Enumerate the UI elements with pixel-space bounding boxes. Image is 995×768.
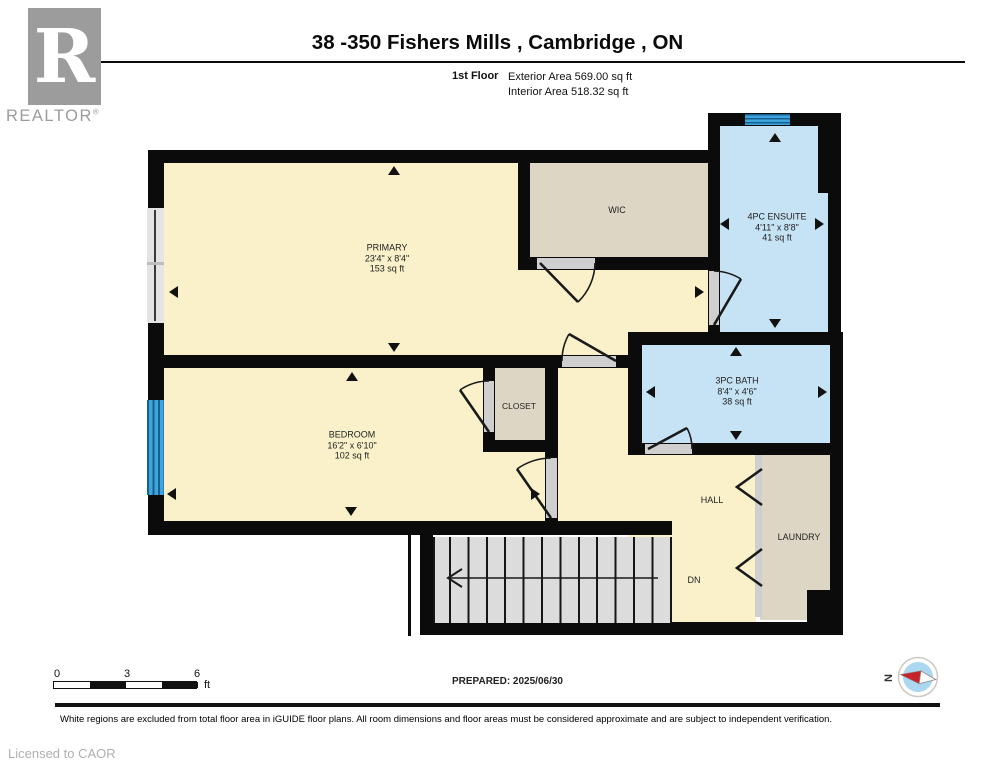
room-dims: 16'2" x 6'10" <box>327 440 376 451</box>
room-name: WIC <box>608 205 626 216</box>
scale-bar-segment <box>90 682 126 688</box>
area-summary: Exterior Area 569.00 sq ft Interior Area… <box>508 70 632 99</box>
exterior-area: Exterior Area 569.00 sq ft <box>508 70 632 85</box>
wall-segment <box>628 332 843 345</box>
bath-room-label: 3PC BATH 8'4" x 4'6" 38 sq ft <box>715 375 758 407</box>
room-name: PRIMARY <box>365 242 409 253</box>
closet-room-label: CLOSET <box>502 401 536 412</box>
laundry-room-label: LAUNDRY <box>778 532 821 543</box>
laundry-door-track <box>755 455 762 617</box>
ensuite-door-sill <box>709 271 719 325</box>
floor-label: 1st Floor <box>452 70 498 82</box>
scale-bar <box>53 681 197 689</box>
scale-tick-3: 3 <box>124 668 130 680</box>
wall-segment <box>518 163 530 267</box>
license-text: Licensed to CAOR <box>8 746 116 761</box>
room-name: BEDROOM <box>327 429 376 440</box>
hall-room-label: HALL <box>701 495 724 506</box>
corridor-door-sill <box>562 356 616 367</box>
room-dims: 8'4" x 4'6" <box>715 386 758 397</box>
wall-segment <box>148 150 718 163</box>
room-dims: 4'11" x 8'8" <box>747 222 806 233</box>
room-area: 38 sq ft <box>715 396 758 407</box>
closet-door-sill <box>484 381 494 432</box>
footer-divider <box>55 703 940 707</box>
realtor-logo-wordmark: REALTOR® <box>6 107 100 126</box>
wall-segment <box>420 622 843 635</box>
window-mullion <box>154 210 156 321</box>
ensuite-window-icon <box>745 114 790 125</box>
stairs-dn-label: DN <box>688 575 701 586</box>
disclaimer-text: White regions are excluded from total fl… <box>60 714 940 725</box>
bedroom-door-sill <box>546 458 557 518</box>
room-area: 102 sq ft <box>327 450 376 461</box>
scale-unit: ft <box>204 679 210 691</box>
compass-needle-tail <box>919 671 937 686</box>
room-name: LAUNDRY <box>778 532 821 543</box>
room-name: HALL <box>701 495 724 506</box>
bedroom-room-label: BEDROOM 16'2" x 6'10" 102 sq ft <box>327 429 376 461</box>
compass-needle-north <box>899 668 921 684</box>
wic-door-sill <box>537 258 595 269</box>
exterior-trim-line <box>408 530 411 636</box>
laundry-floor-lower <box>760 590 808 620</box>
compass-north-label: N <box>883 674 895 682</box>
scale-tick-6: 6 <box>194 668 200 680</box>
floorplan-sheet: R REALTOR® 38 -350 Fishers Mills , Cambr… <box>0 0 995 768</box>
header-divider <box>100 61 965 63</box>
page-title: 38 -350 Fishers Mills , Cambridge , ON <box>0 31 995 55</box>
primary-floor <box>160 160 520 360</box>
room-name: CLOSET <box>502 401 536 412</box>
window-split <box>147 262 164 265</box>
prepared-date: PREPARED: 2025/06/30 <box>452 676 563 687</box>
wic-room-label: WIC <box>608 205 626 216</box>
registered-mark: ® <box>93 108 100 117</box>
stair-treads <box>433 537 672 623</box>
room-area: 153 sq ft <box>365 263 409 274</box>
room-name: 3PC BATH <box>715 375 758 386</box>
corridor-floor <box>556 366 630 526</box>
compass-icon: N <box>883 658 938 697</box>
wall-segment <box>807 590 843 635</box>
wall-segment <box>420 521 433 635</box>
laundry-floor <box>760 452 832 592</box>
interior-area: Interior Area 518.32 sq ft <box>508 85 632 100</box>
room-dims: 23'4" x 8'4" <box>365 253 409 264</box>
ensuite-room-label: 4PC ENSUITE 4'11" x 8'8" 41 sq ft <box>747 211 806 243</box>
room-name: DN <box>688 575 701 586</box>
primary-room-label: PRIMARY 23'4" x 8'4" 153 sq ft <box>365 242 409 274</box>
wall-segment <box>628 332 642 455</box>
bedroom-window-icon <box>147 400 164 495</box>
compass-ring <box>899 658 938 697</box>
realtor-logo-text: REALTOR <box>6 107 93 125</box>
scale-bar-segment <box>162 682 198 688</box>
room-name: 4PC ENSUITE <box>747 211 806 222</box>
room-area: 41 sq ft <box>747 232 806 243</box>
wall-segment <box>828 113 841 345</box>
compass-face <box>903 662 933 692</box>
bath-door-sill <box>645 444 692 454</box>
scale-tick-0: 0 <box>54 668 60 680</box>
primary-window-icon <box>147 208 164 323</box>
realtor-logo-icon: R <box>28 8 101 105</box>
compass-needle <box>899 668 936 686</box>
